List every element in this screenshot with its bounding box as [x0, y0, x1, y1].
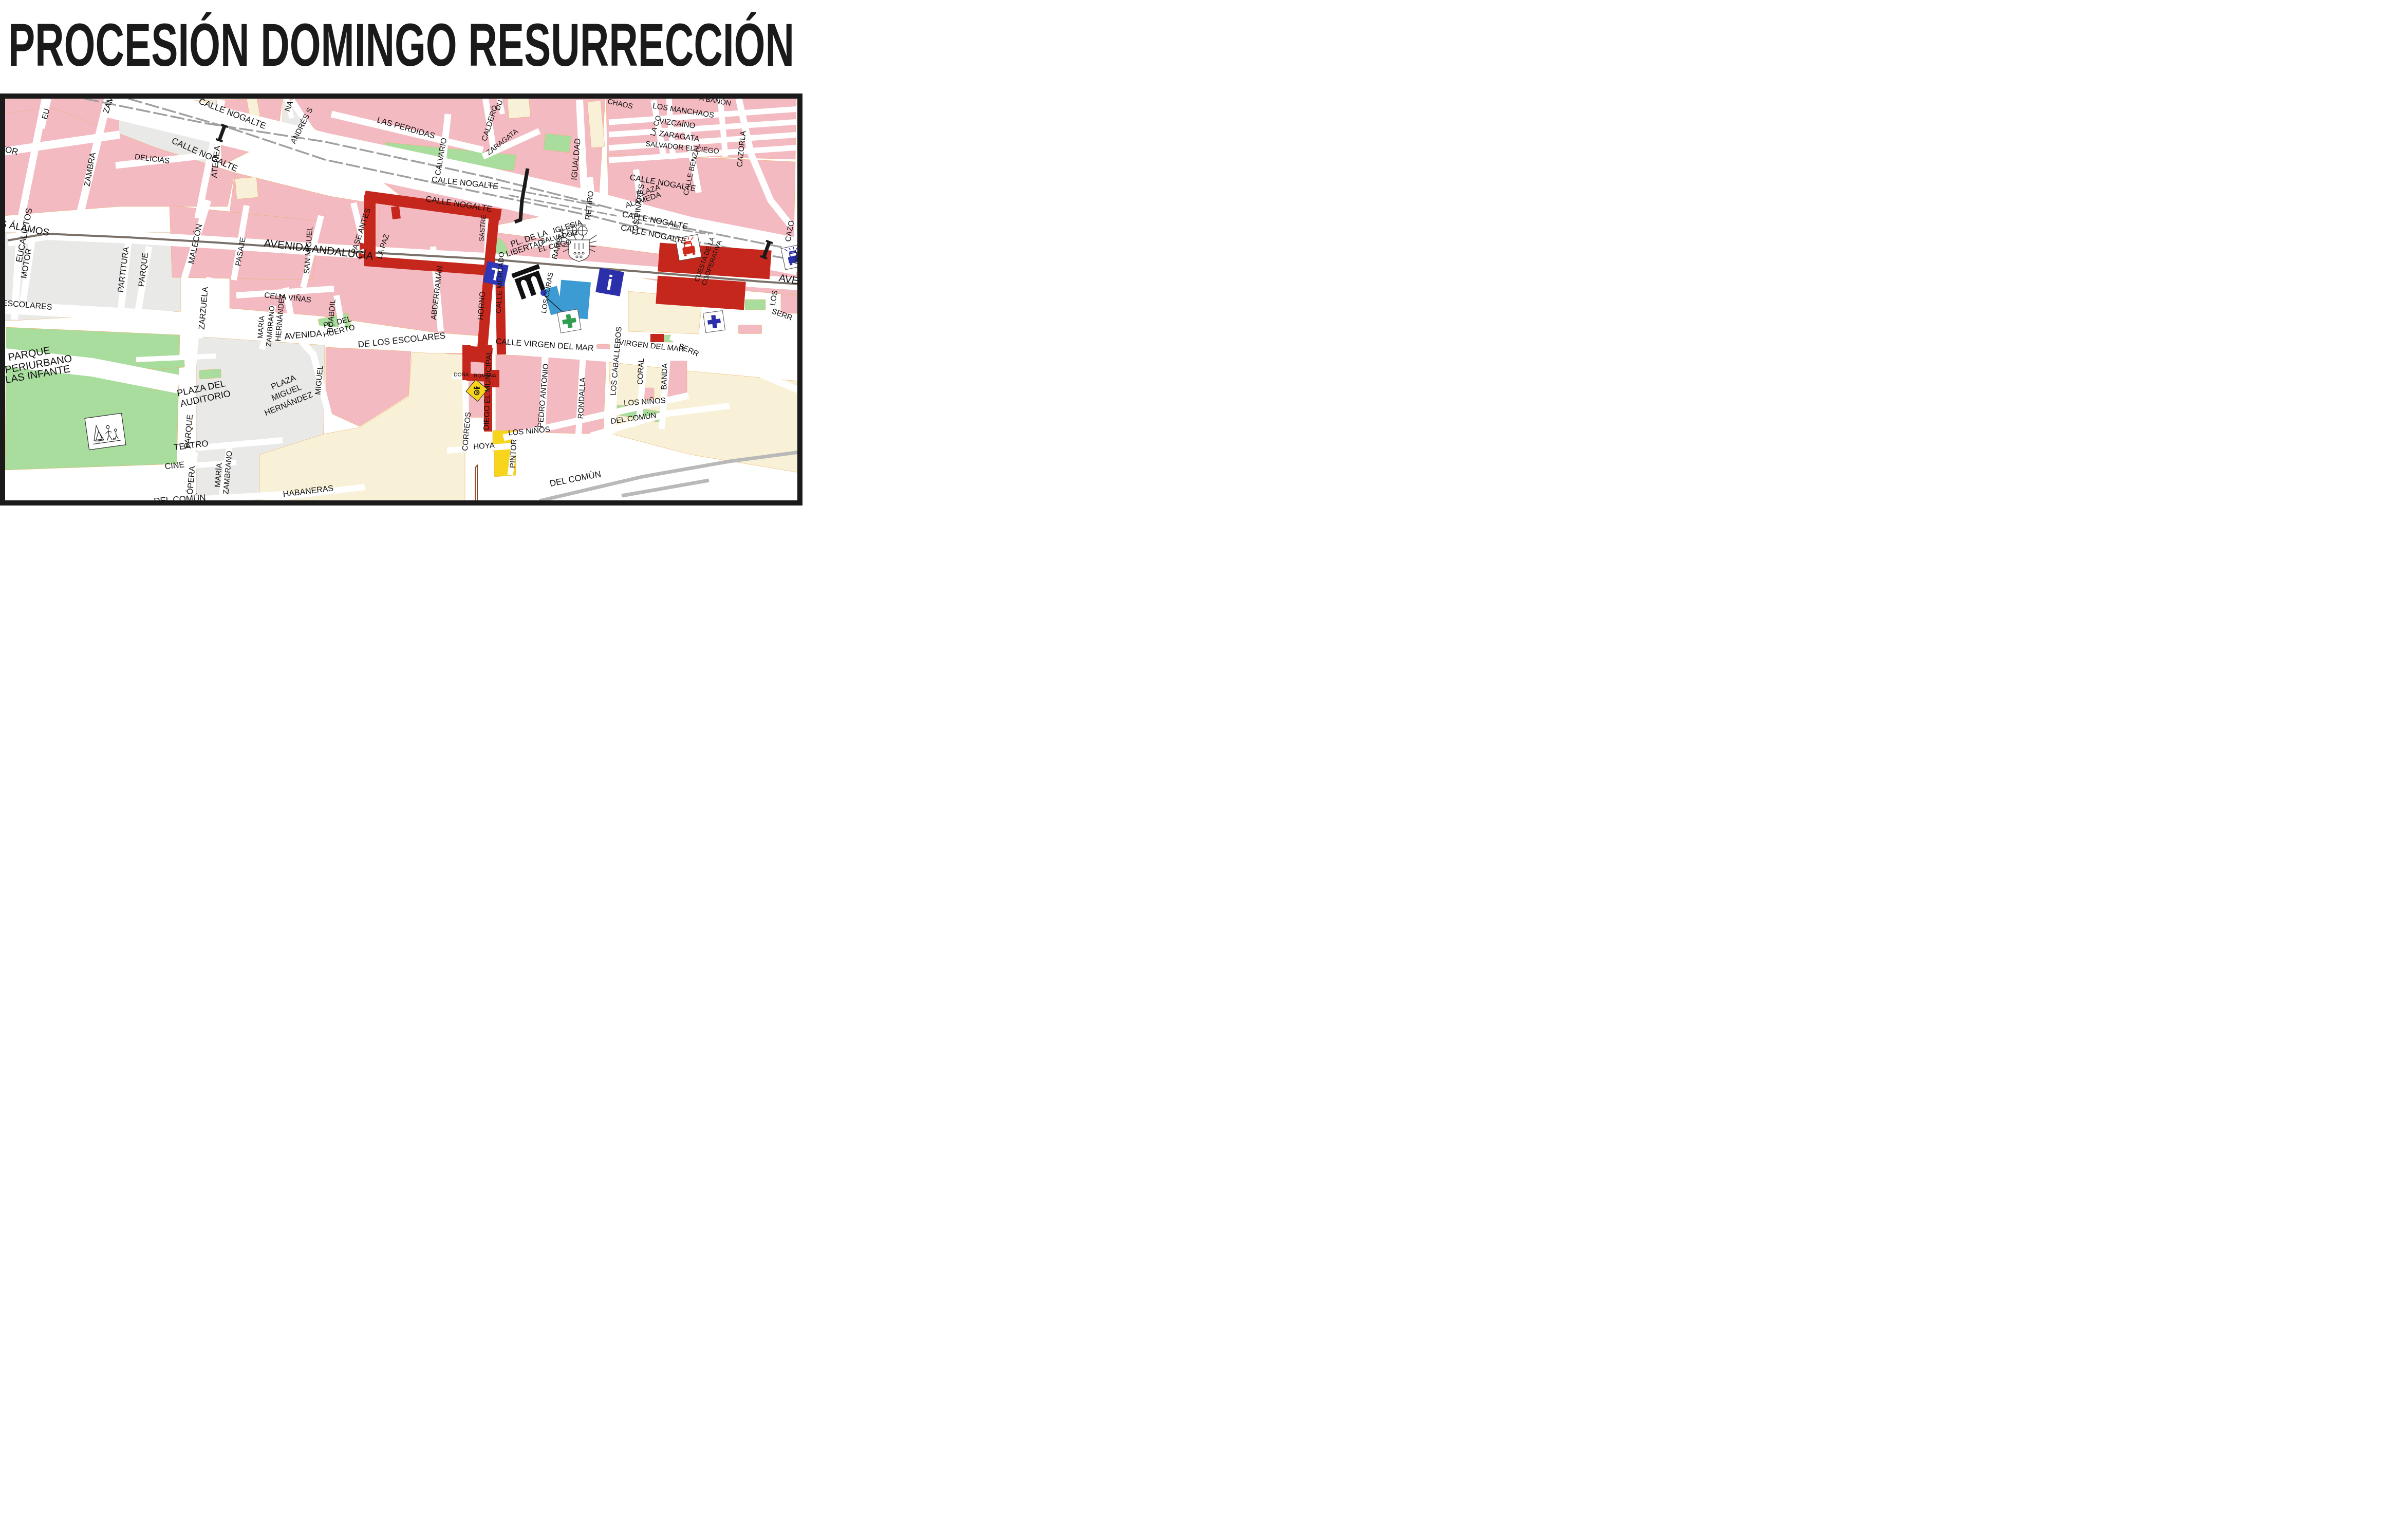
cream-top-1: [507, 97, 530, 119]
procession-map-page: PROCESIÓN DOMINGO RESURRECCIÓN TiAYOREUE…: [0, 0, 802, 506]
red-building: [650, 334, 664, 342]
green-plaza-alameda: [544, 134, 571, 153]
map-canvas: PROCESIÓN DOMINGO RESURRECCIÓN TiAYOREUE…: [0, 0, 802, 506]
street-label: CORAL: [636, 358, 646, 385]
green-miguel-hernandez: [199, 369, 221, 379]
info-icon: i: [595, 268, 624, 296]
procession-route-segment: [395, 207, 397, 219]
park-icon: [85, 413, 126, 450]
pharmacy-cross-icon: [557, 309, 581, 333]
page-title: PROCESIÓN DOMINGO RESURRECCIÓN: [8, 11, 794, 79]
cream-pase-antes: [235, 177, 258, 199]
green-small-right: [745, 300, 766, 310]
street-label: HOYA: [473, 441, 495, 452]
street: [136, 356, 216, 360]
blocks-virgen-grid: [496, 354, 606, 434]
street-label: DOÑA: [454, 371, 469, 378]
block-se-5: [739, 325, 762, 334]
street-label: BANDA: [660, 363, 669, 390]
city-map: TiAYOREUEUCALIPTOSZAMBRAZAMDELICIASATENE…: [0, 91, 802, 506]
street-label: PINTOR: [509, 439, 519, 468]
hospital-cross-icon: [703, 311, 725, 333]
